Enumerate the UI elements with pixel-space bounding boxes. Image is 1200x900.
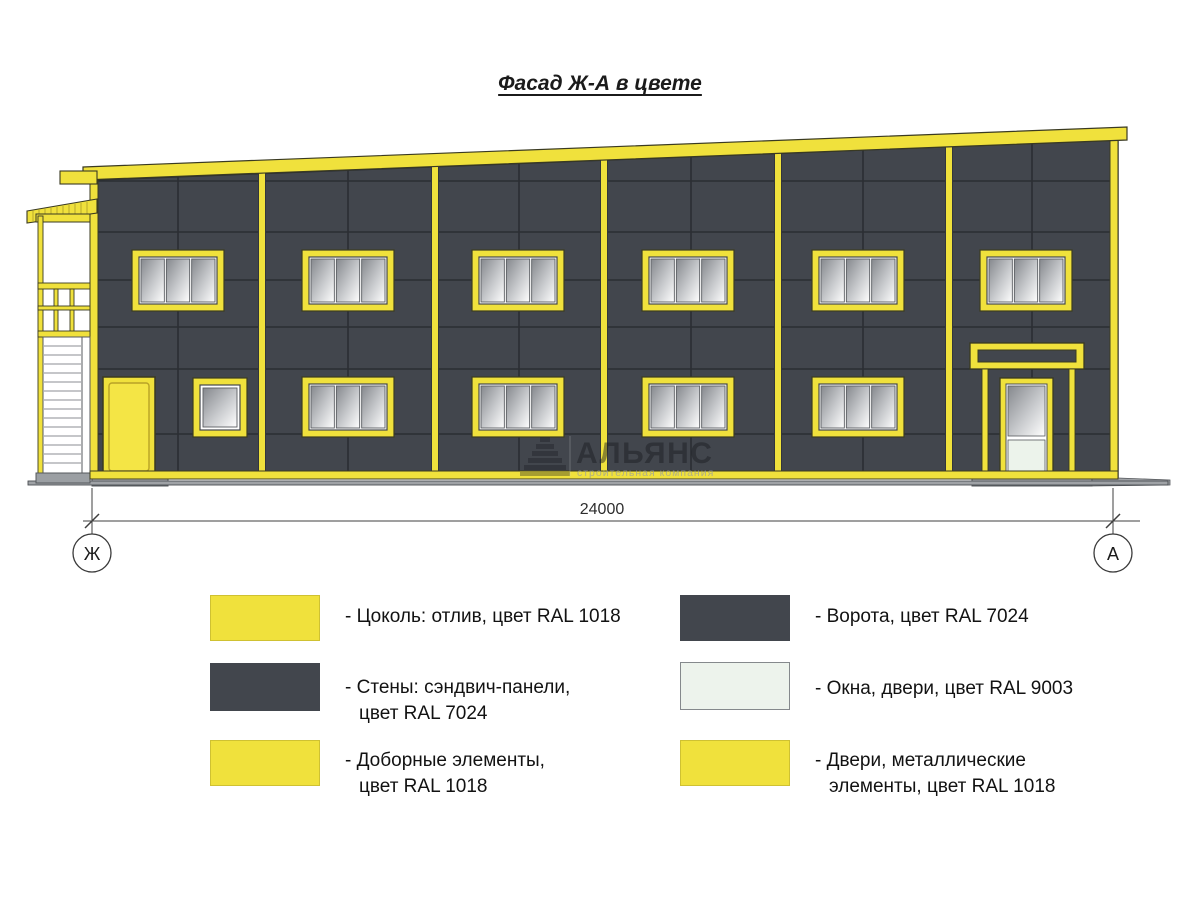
facade-drawing: АЛЬЯНС строительная компания 24000 Ж А [0, 0, 1200, 580]
staircase [27, 199, 97, 483]
window [132, 250, 224, 311]
metal-door [103, 377, 155, 477]
watermark-subtitle: строительная компания [577, 467, 714, 479]
dimension-value: 24000 [580, 501, 625, 518]
svg-text:А: А [1107, 544, 1119, 564]
svg-text:Ж: Ж [84, 544, 101, 564]
small-window [193, 378, 247, 437]
window [812, 250, 904, 311]
window [302, 250, 394, 311]
window [812, 377, 904, 437]
window [642, 250, 734, 311]
window [980, 250, 1072, 311]
legend-swatch-doors [680, 740, 790, 786]
axis-left: Ж [73, 534, 111, 572]
watermark-name: АЛЬЯНС [576, 437, 713, 470]
legend-swatch-trim [210, 740, 320, 786]
legend-swatch-gates [680, 595, 790, 641]
legend-label-walls: - Стены: сэндвич-панели,цвет RAL 7024 [345, 675, 570, 727]
axis-right: А [1094, 534, 1132, 572]
window [302, 377, 394, 437]
window [472, 377, 564, 437]
legend-label-plinth: - Цоколь: отлив, цвет RAL 1018 [345, 604, 621, 630]
window [642, 377, 734, 437]
legend-label-gates: - Ворота, цвет RAL 7024 [815, 604, 1029, 630]
legend-swatch-walls [210, 663, 320, 711]
legend-label-windows: - Окна, двери, цвет RAL 9003 [815, 676, 1073, 702]
legend-label-trim: - Доборные элементы,цвет RAL 1018 [345, 748, 545, 800]
window [472, 250, 564, 311]
drawing-sheet: Фасад Ж-А в цвете [0, 0, 1200, 900]
legend-label-doors: - Двери, металлическиеэлементы, цвет RAL… [815, 748, 1055, 800]
legend-swatch-windows [680, 662, 790, 710]
legend-swatch-plinth [210, 595, 320, 641]
